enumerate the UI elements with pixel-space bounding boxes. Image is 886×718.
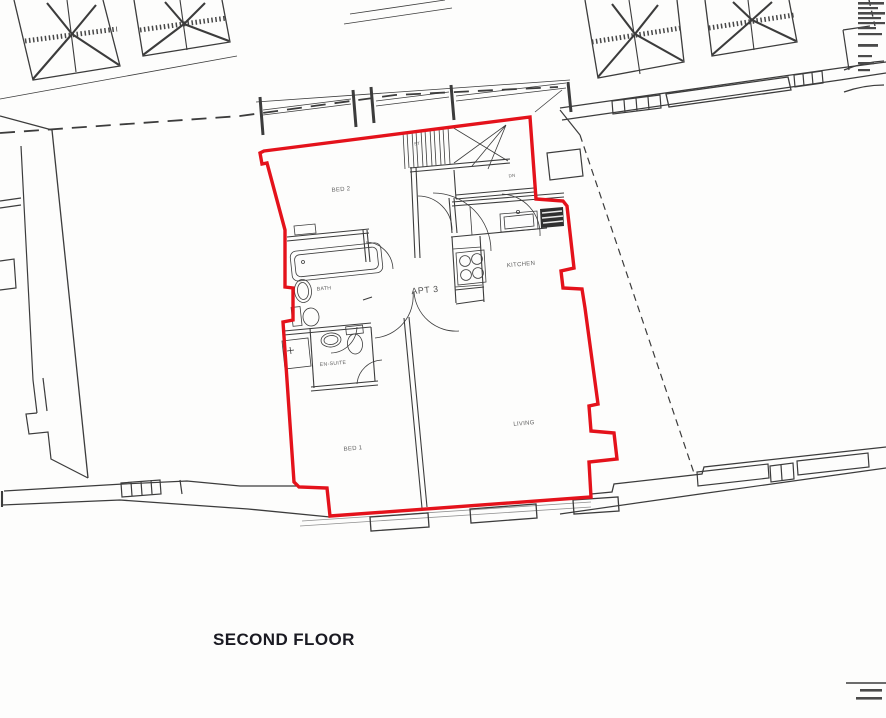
label-stairs-store: ST: [414, 141, 421, 147]
top-wall-windows: [256, 80, 571, 135]
cropped-title-block-text: [846, 2, 886, 700]
label-ensuite: EN-SUITE: [320, 360, 347, 368]
boundary-dashed-line: [0, 0, 875, 133]
left-building-walls: [0, 116, 330, 517]
label-living: LIVING: [513, 420, 535, 428]
apartment-red-outline: [260, 117, 617, 516]
label-apartment: APT 3: [411, 284, 439, 296]
roof-plan-blocks: [0, 0, 797, 99]
floor-title: SECOND FLOOR: [213, 630, 355, 649]
kitchen-fittings: [451, 193, 564, 304]
label-bed2: BED 2: [331, 186, 351, 194]
label-bed1: BED 1: [343, 445, 363, 453]
room-labels: BED 2 BATH EN-SUITE BED 1 KITCHEN LIVING…: [317, 141, 536, 453]
staircase: [403, 125, 534, 251]
bathroom-fittings: [287, 229, 393, 327]
right-building-walls: [535, 26, 886, 514]
label-kitchen: KITCHEN: [507, 261, 536, 269]
floor-plan-canvas: BED 2 BATH EN-SUITE BED 1 KITCHEN LIVING…: [0, 0, 886, 718]
label-stairs-down: DN: [508, 173, 515, 179]
apartment-interior: [282, 125, 564, 508]
ensuite-fittings: [282, 325, 382, 391]
label-bath: BATH: [317, 285, 332, 292]
